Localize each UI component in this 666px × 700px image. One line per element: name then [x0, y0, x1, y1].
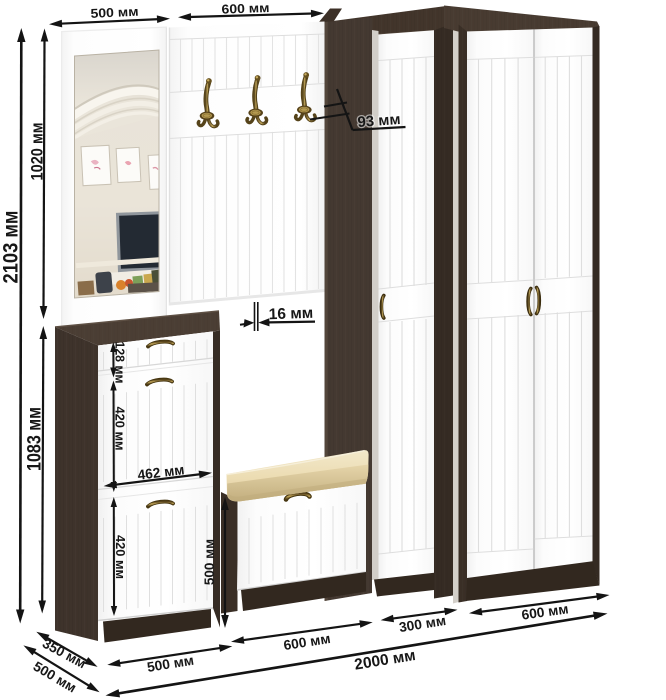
- svg-text:93 мм: 93 мм: [357, 111, 401, 131]
- svg-text:420 мм: 420 мм: [113, 407, 128, 451]
- svg-text:1083 мм: 1083 мм: [24, 407, 46, 471]
- svg-text:500 мм: 500 мм: [90, 4, 139, 21]
- svg-text:128 мм: 128 мм: [112, 342, 127, 384]
- svg-text:2103 мм: 2103 мм: [0, 211, 23, 284]
- svg-text:1020 мм: 1020 мм: [28, 123, 47, 181]
- svg-text:500 мм: 500 мм: [202, 539, 217, 585]
- svg-text:600 мм: 600 мм: [221, 0, 269, 17]
- svg-text:420 мм: 420 мм: [113, 535, 128, 579]
- svg-text:16 мм: 16 мм: [268, 305, 313, 324]
